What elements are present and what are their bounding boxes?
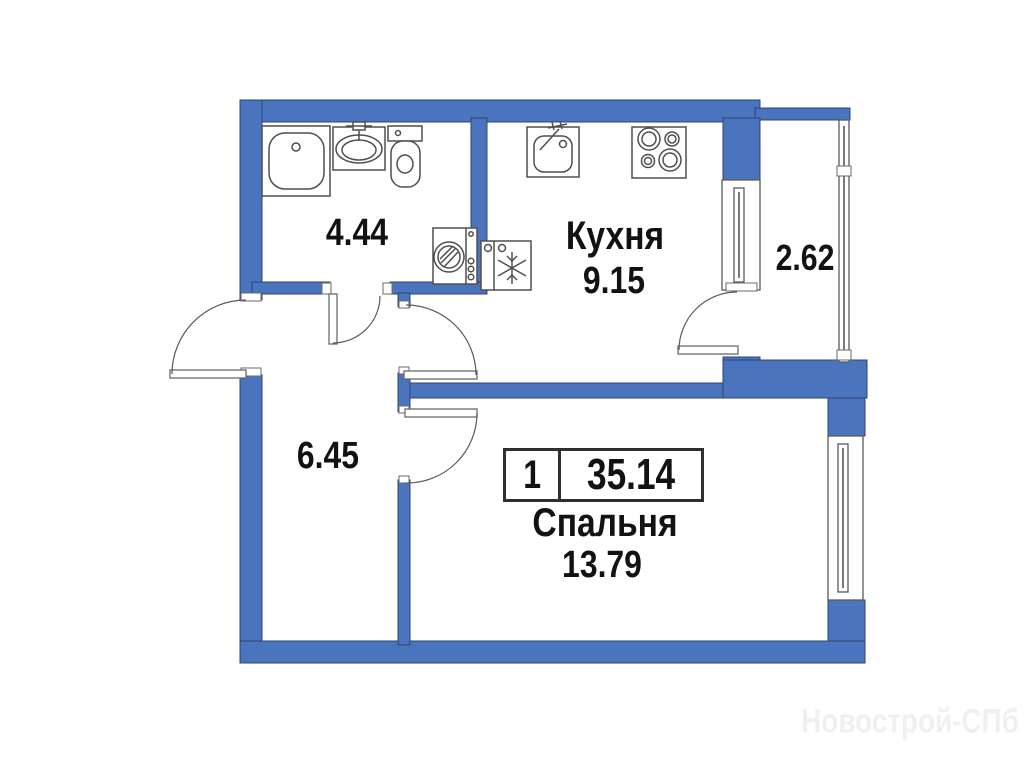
bedroom-door (399, 406, 477, 483)
bedroom-area-label: 13.79 (562, 546, 642, 584)
loggia-area-label: 2.62 (776, 240, 835, 276)
toilet-icon (388, 126, 422, 187)
rooms-count-cell: 1 (506, 451, 561, 499)
shower-icon (262, 126, 330, 196)
kitchen-balcony-window (722, 180, 760, 290)
balcony-glazing-window (837, 120, 851, 362)
rooms-count: 1 (523, 455, 541, 495)
bathroom-door (322, 283, 392, 344)
walls-layer (240, 100, 867, 663)
kitchen-name-label: Кухня (566, 216, 664, 256)
balcony-door (678, 283, 757, 354)
bathroom-area-label: 4.44 (326, 214, 388, 252)
total-area-cell: 35.14 (561, 451, 701, 499)
bedroom-name-label: Спальня (532, 503, 677, 543)
watermark: Новострой-СПб (801, 703, 1019, 742)
washing-machine-icon (433, 228, 477, 284)
floor-plan: 4.44 Кухня 9.15 2.62 6.45 Спальня 13.79 … (0, 0, 1024, 768)
entrance-door (170, 293, 261, 378)
apartment-type-badge: 1 35.14 (503, 448, 704, 502)
hallway-area-label: 6.45 (297, 437, 359, 475)
total-area: 35.14 (587, 453, 675, 497)
fridge-icon (481, 241, 531, 290)
kitchen-sink-icon (527, 121, 579, 177)
bedroom-window (828, 436, 863, 600)
floor-plan-drawing (0, 0, 1024, 768)
bathroom-sink-icon (333, 122, 385, 170)
stove-icon (632, 127, 686, 178)
kitchen-door (399, 301, 477, 379)
kitchen-area-label: 9.15 (583, 262, 645, 300)
